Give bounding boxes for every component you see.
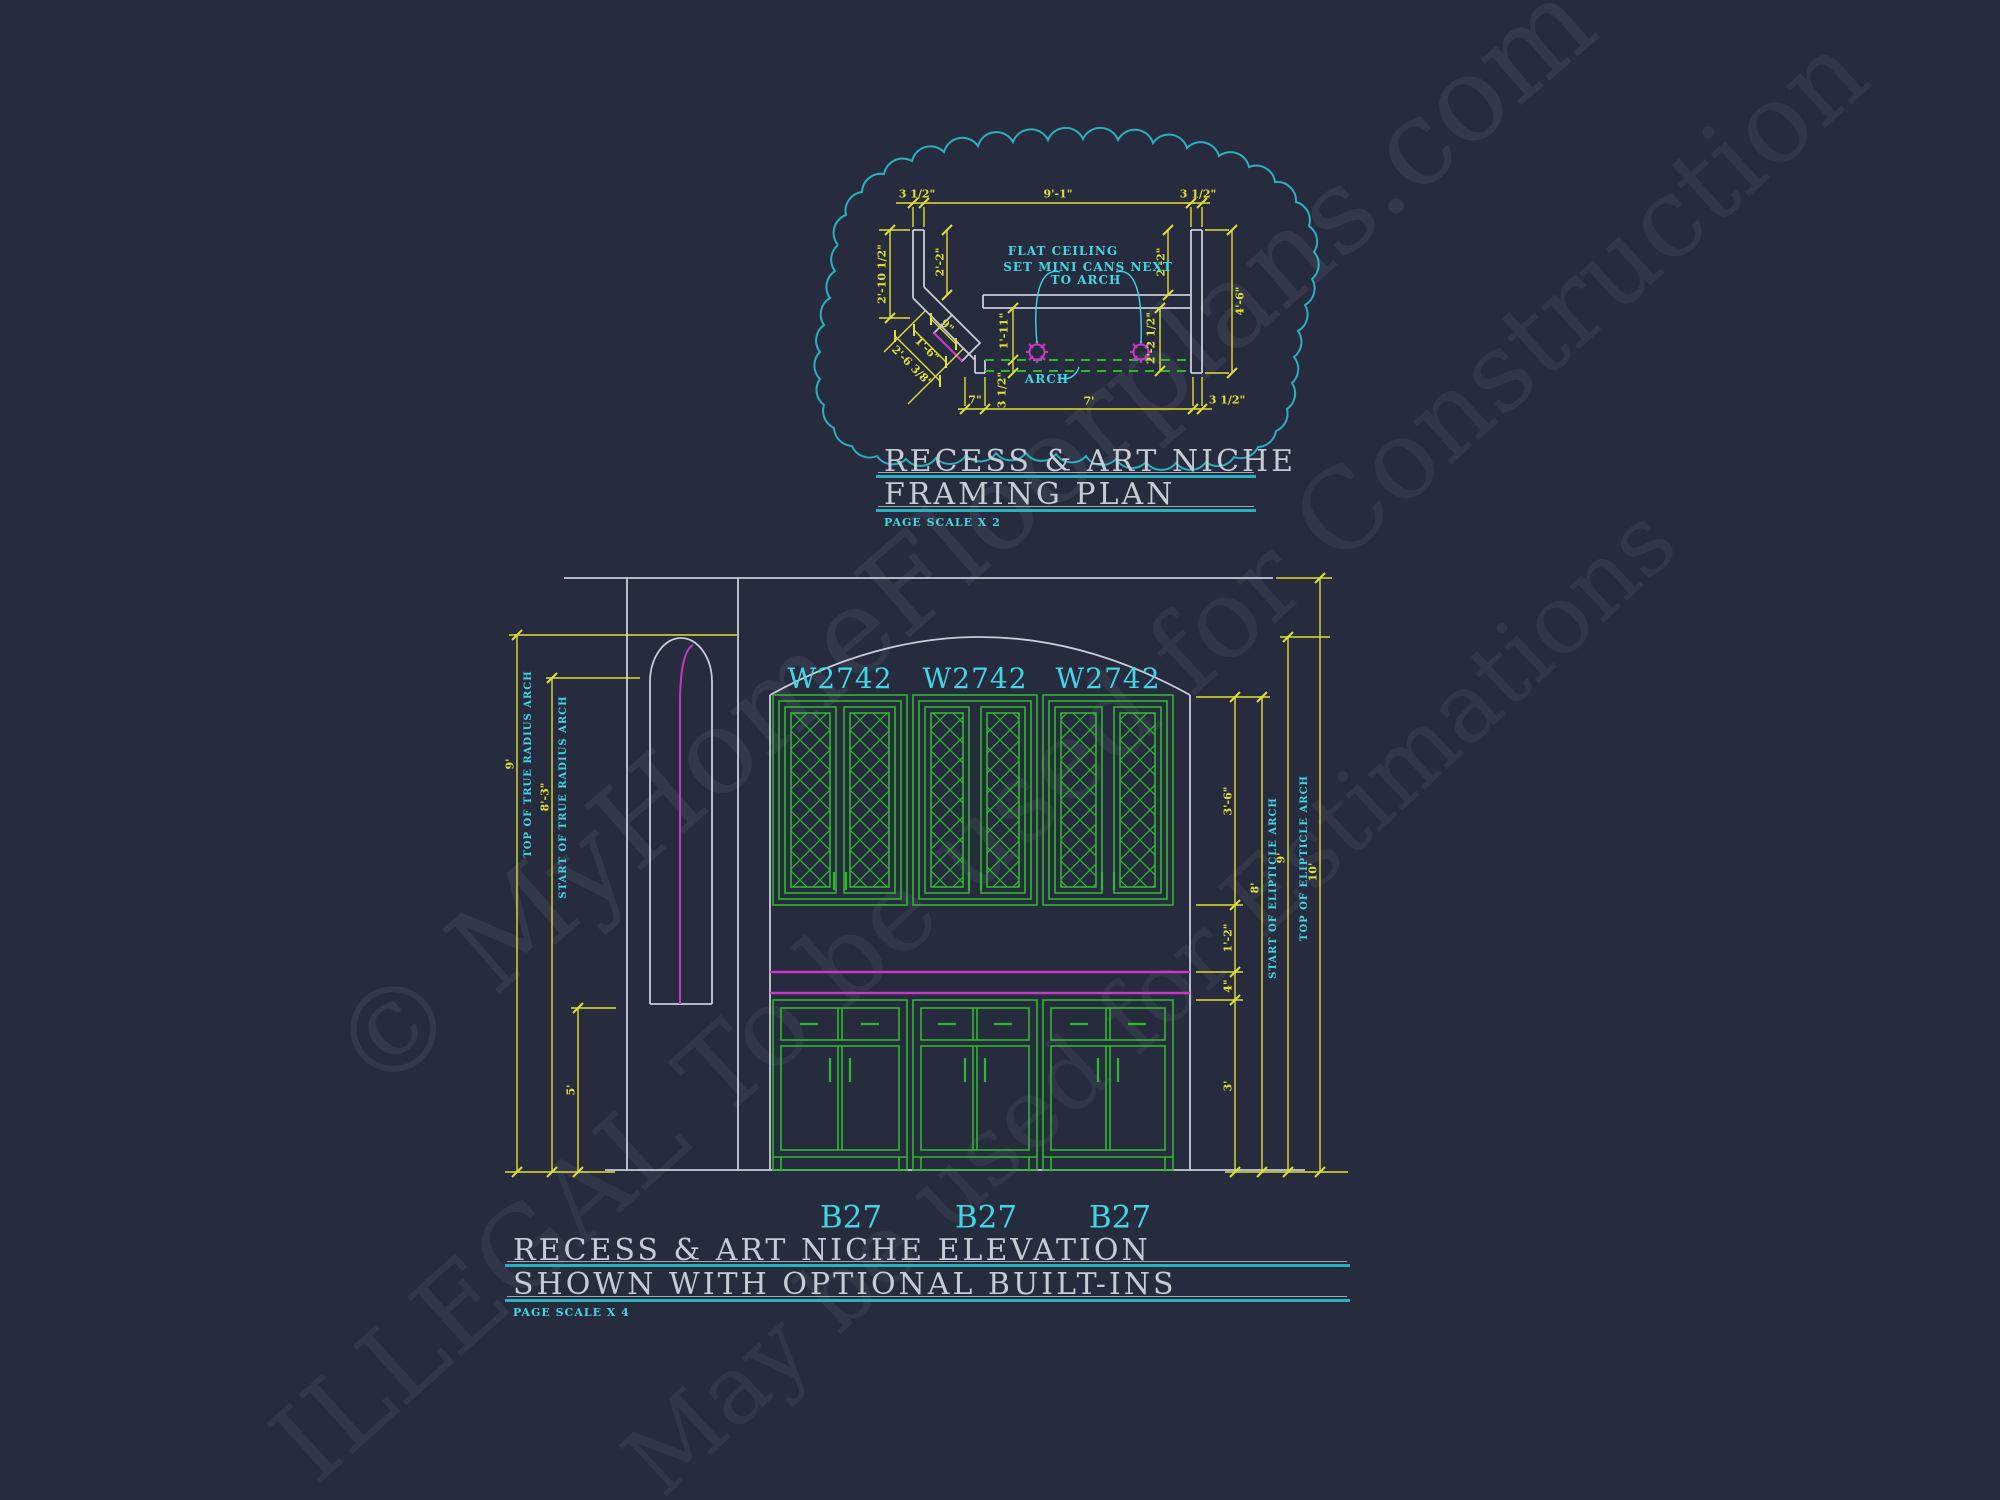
plan-title-underline2-thin	[878, 506, 1254, 507]
elev-dim-upper-cabinet-height: 3'-6"	[1223, 787, 1234, 816]
elevation-title-underline2-thin	[507, 1296, 1347, 1297]
elevation-title-underline1-thin	[507, 1261, 1347, 1262]
elevation-page-scale: PAGE SCALE X 4	[513, 1306, 630, 1319]
plan-note-mini-cans-line2: TO ARCH	[1051, 274, 1122, 286]
elev-dim-left-overall: 9'	[505, 758, 516, 769]
base-cabinet-label-2: B27	[955, 1203, 1017, 1234]
elev-label-top-elliptical-arch: TOP OF ELIPTICLE ARCH	[1300, 775, 1310, 941]
upper-cabinet-label-1: W2742	[787, 665, 892, 693]
countertop-lines	[770, 972, 1190, 993]
base-cabinet-label-3: B27	[1089, 1203, 1151, 1234]
elev-label-top-true-radius-arch: TOP OF TRUE RADIUS ARCH	[524, 670, 534, 857]
elevation-title-line1: RECESS & ART NICHE ELEVATION	[513, 1233, 1151, 1268]
plan-note-mini-cans-line1: SET MINI CANS NEXT	[1003, 261, 1173, 273]
plan-dim-stud-left: 3 1/2"	[899, 189, 936, 200]
elev-label-start-elliptical-arch: START OF ELIPTICLE ARCH	[1269, 797, 1279, 979]
plan-dim-bottom-span: 7'	[1083, 396, 1094, 407]
plan-title-line1: RECESS & ART NICHE	[884, 444, 1296, 479]
elev-label-start-true-radius-arch: START OF TRUE RADIUS ARCH	[559, 695, 569, 898]
elevation-title-underline2	[505, 1299, 1350, 1302]
plan-dim-bottom-right: 3 1/2"	[1209, 395, 1246, 406]
plan-note-arch: ARCH	[1025, 373, 1069, 385]
elev-dim-counter-to-upper: 1'-2"	[1223, 924, 1234, 953]
elev-dim-counter-height: 3'	[1223, 1080, 1234, 1091]
plan-dim-header-height: 1'-11"	[999, 313, 1010, 350]
upper-cabinet-label-2: W2742	[922, 665, 1027, 693]
plan-note-leaders	[1036, 271, 1141, 378]
plan-dim-left-inner: 2'-2"	[935, 248, 946, 277]
elev-dim-niche-sill: 5'	[566, 1084, 577, 1095]
elev-dim-right-arch-top: 9'	[1276, 852, 1287, 863]
plan-dim-arch-band: 3 1/2"	[997, 372, 1008, 409]
plan-dim-right-depth: 2'-2 1/2"	[1146, 312, 1157, 364]
plan-page-scale: PAGE SCALE X 2	[884, 516, 1001, 529]
elev-dim-right-arch-start: 8'	[1250, 882, 1261, 893]
elev-dim-left-arch-start: 8'-3"	[540, 783, 551, 812]
base-cabinets	[773, 1000, 1173, 1170]
plan-note-flat-ceiling: FLAT CEILING	[1008, 245, 1118, 257]
upper-cabinets	[773, 695, 1173, 905]
niche-centerline	[680, 645, 693, 1004]
elev-dim-backsplash: 4"	[1223, 979, 1234, 992]
plan-dim-stud-right: 3 1/2"	[1180, 189, 1217, 200]
elev-dim-ceiling-height: 10'	[1308, 863, 1319, 882]
plan-dim-left-outer: 2'-10 1/2"	[877, 244, 888, 304]
plan-title-underline2	[876, 509, 1256, 512]
plan-dim-right-outer: 4'-6"	[1235, 287, 1246, 316]
plan-dim-bottom-left: 7"	[968, 395, 981, 406]
upper-cabinet-label-3: W2742	[1055, 665, 1160, 693]
cad-canvas: © MyHomeFloorplans.com ILLEGAL To be use…	[0, 0, 2000, 1500]
plan-title-underline1-thin	[878, 472, 1254, 473]
plan-dim-opening-width: 9'-1"	[1044, 189, 1073, 200]
base-cabinet-label-1: B27	[820, 1203, 882, 1234]
